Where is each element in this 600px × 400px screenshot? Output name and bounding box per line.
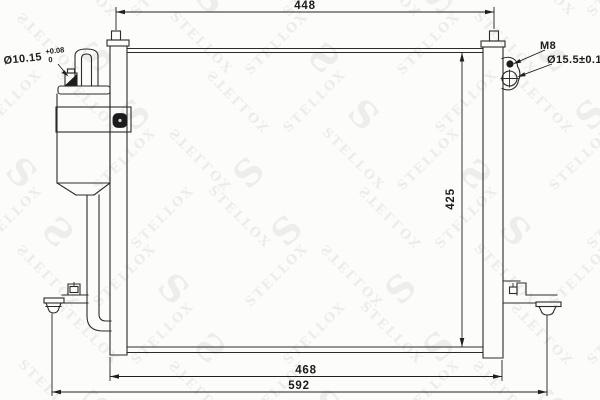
right-tank-cap	[481, 41, 505, 47]
callout-drier-port: Ø10.15 +0.08 0	[3, 45, 69, 76]
port-dia-label: Ø15.5±0.1	[547, 54, 600, 66]
dim-592-arrow-left	[52, 390, 61, 395]
dim-592-label: 592	[288, 380, 310, 392]
dim-448-label: 448	[294, 0, 316, 12]
dim-core-height: 425	[445, 53, 464, 348]
drawing-canvas: SSTELLOXSTELLOXSSTELLOXSTELLOXSSTELLOXST…	[0, 0, 600, 400]
left-rubber-foot	[46, 303, 61, 313]
left-mounting-bracket	[44, 282, 88, 313]
drier-port-tol-minus: 0	[48, 55, 53, 64]
drier-funnel-bottom	[57, 183, 110, 195]
left-header-tank	[107, 31, 129, 355]
left-tank-body	[110, 46, 127, 355]
drier-top-cap	[58, 86, 110, 94]
condenser-core	[127, 49, 483, 353]
dim-468-arrow-right	[493, 374, 502, 379]
drier-port-cap	[68, 69, 75, 73]
condenser-technical-drawing: 448 425 468 592	[0, 0, 600, 400]
clamp-bolt-slot	[118, 119, 121, 122]
left-bracket-bolt	[70, 287, 78, 293]
dim-468-arrow-left	[110, 374, 119, 379]
drier-outlet-pipe-inner	[99, 195, 111, 321]
drier-port-dia-label: Ø10.15	[3, 51, 43, 67]
left-foot-plate	[44, 298, 64, 303]
left-bracket-arm	[44, 295, 88, 303]
drier-port-label-group: Ø10.15 +0.08 0	[3, 45, 66, 69]
dim-425-label: 425	[445, 188, 457, 210]
dim-425-arrow-top	[460, 53, 465, 62]
right-bracket-plate	[517, 283, 526, 295]
right-mounting-bracket	[503, 281, 561, 315]
drier-port-fitting-shade	[66, 75, 77, 86]
dim-592-arrow-right	[538, 390, 547, 395]
right-tank-nipple	[490, 31, 499, 41]
dim-top-width: 448	[116, 0, 494, 30]
callout-port-dia: Ø15.5±0.1	[518, 54, 600, 77]
dim-468-label: 468	[295, 365, 317, 377]
right-header-tank	[481, 31, 505, 358]
m8-stud	[507, 61, 513, 67]
m8-label: M8	[540, 40, 556, 52]
right-rubber-foot	[539, 307, 556, 316]
right-tank-body	[483, 47, 503, 358]
dim-425-arrow-bottom	[460, 338, 465, 347]
right-bracket-bolt	[510, 287, 518, 294]
drier-inlet-loop-inner	[82, 54, 92, 86]
port-dia-leader-arrow	[518, 72, 526, 77]
dim-bottom-inner-width: 468	[110, 357, 502, 381]
left-tank-nipple	[112, 31, 121, 40]
dim-448-arrow-left	[116, 10, 125, 15]
left-tank-cap	[107, 40, 129, 46]
dim-448-arrow-right	[485, 10, 494, 15]
receiver-drier	[56, 49, 131, 331]
right-foot-plate	[536, 302, 561, 307]
